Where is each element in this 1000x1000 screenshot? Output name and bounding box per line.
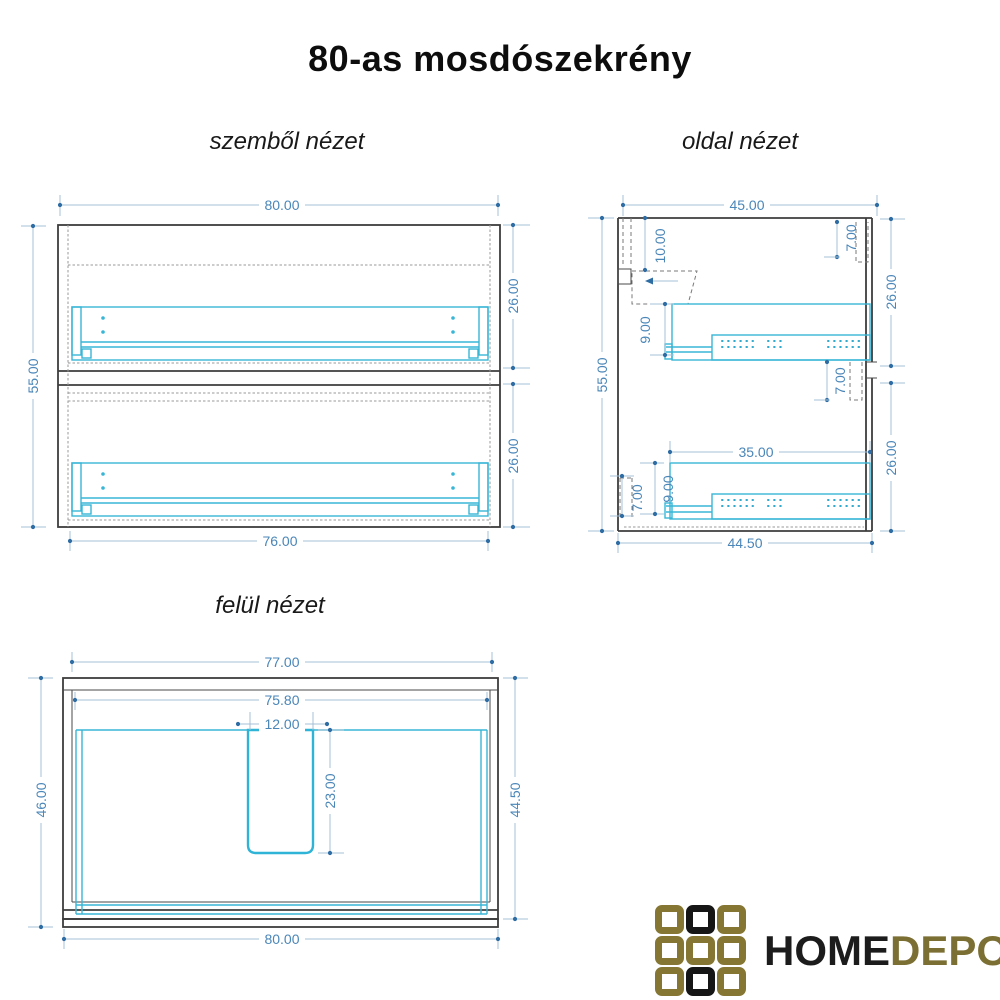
side-dim-upper-section: 26.00 [883, 274, 899, 309]
side-upper-drawer [665, 304, 870, 360]
side-dim-front-top-offset: 7.00 [843, 224, 859, 251]
logo-wordmark: HOMEDEPO [764, 930, 1000, 972]
homedepo-logo: HOMEDEPO [655, 905, 1000, 996]
side-dim-rail-length: 35.00 [738, 444, 773, 460]
side-dim-height-left: 55.00 [594, 357, 610, 392]
top-dim-depth-right: 44.50 [507, 782, 523, 817]
top-view-drawing: 77.00 75.80 12.00 23.00 [20, 645, 540, 960]
top-dim-cutout-depth: 23.00 [322, 773, 338, 808]
sink-cutout [248, 730, 313, 853]
logo-text-depo: DEPO [890, 927, 1000, 974]
top-dim-width-top: 77.00 [264, 654, 299, 670]
front-dim-upper-section: 26.00 [505, 278, 521, 313]
logo-grid-square [686, 905, 715, 934]
front-view-label: szemből nézet [37, 128, 537, 156]
top-dim-inner-width: 75.80 [264, 692, 299, 708]
side-lower-drawer [665, 463, 870, 519]
side-dim-lower-section: 26.00 [883, 440, 899, 475]
side-view-drawing: 45.00 55.00 10.00 7.00 26.00 [585, 185, 915, 560]
top-dim-width-bottom: 80.00 [264, 931, 299, 947]
side-dim-bracket-offset: 10.00 [652, 228, 668, 263]
top-view-label: felül nézet [20, 592, 520, 620]
front-view-drawing: 80.00 55.00 26.00 26.00 [20, 185, 560, 560]
logo-grid-icon [655, 905, 746, 996]
logo-grid-square [686, 967, 715, 996]
front-dim-lower-section: 26.00 [505, 438, 521, 473]
side-dim-depth-bottom: 44.50 [727, 535, 762, 551]
logo-grid-square [686, 936, 715, 965]
front-lower-drawer [72, 463, 488, 516]
side-dim-middle-front-offset: 7.00 [832, 367, 848, 394]
side-dim-lower-rail: 9.00 [660, 475, 676, 502]
logo-text-home: HOME [764, 927, 890, 974]
page-title: 80-as mosdószekrény [0, 38, 1000, 80]
blueprint-page: 80-as mosdószekrény szemből nézet oldal … [0, 0, 1000, 1000]
logo-grid-square [717, 967, 746, 996]
side-view-label: oldal nézet [590, 128, 890, 156]
front-dim-width-top: 80.00 [264, 197, 299, 213]
front-cabinet-outline [58, 225, 500, 527]
front-dim-width-bottom: 76.00 [262, 533, 297, 549]
logo-grid-square [655, 967, 684, 996]
side-dim-upper-rail: 9.00 [637, 316, 653, 343]
logo-grid-square [717, 905, 746, 934]
top-dim-depth-left: 46.00 [33, 782, 49, 817]
side-dim-depth-top: 45.00 [729, 197, 764, 213]
front-dim-height-left: 55.00 [25, 358, 41, 393]
logo-grid-square [717, 936, 746, 965]
top-dim-cutout-width: 12.00 [264, 716, 299, 732]
logo-grid-square [655, 936, 684, 965]
side-dim-bottom-back-offset: 7.00 [629, 484, 645, 511]
front-upper-drawer [72, 307, 488, 360]
top-inner-edges [76, 730, 487, 914]
logo-grid-square [655, 905, 684, 934]
